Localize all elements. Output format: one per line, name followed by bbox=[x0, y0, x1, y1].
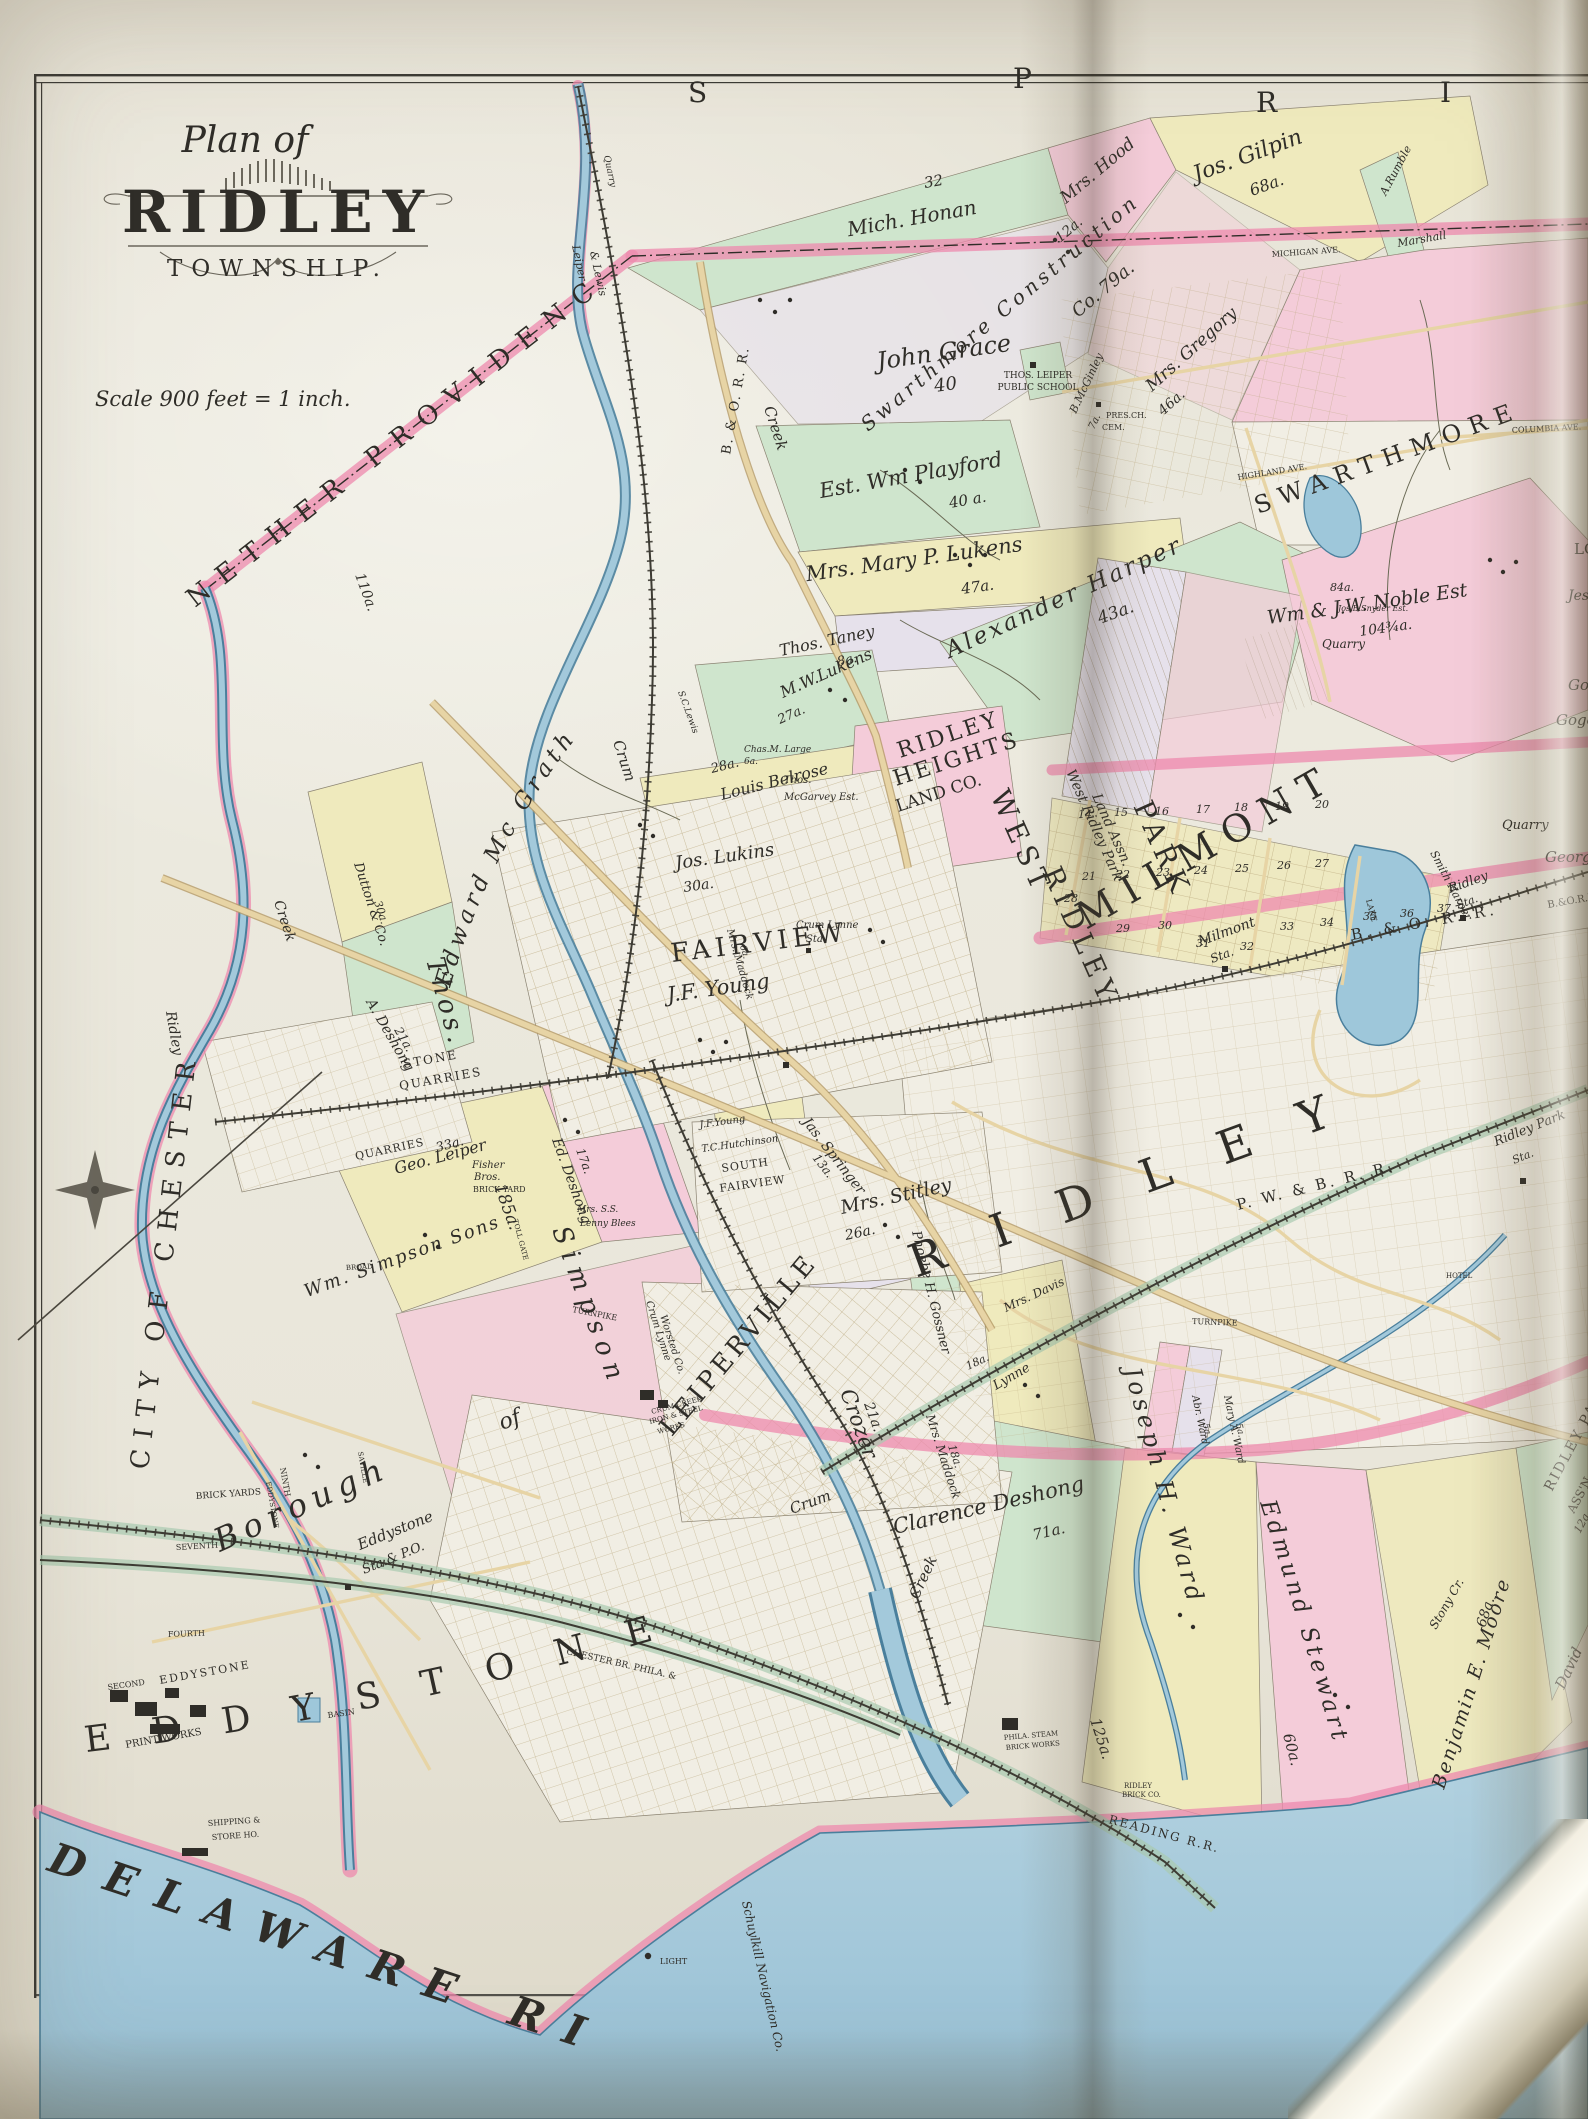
label-honan-acreage: 32 bbox=[923, 171, 945, 192]
svg-text:29: 29 bbox=[1115, 922, 1130, 935]
title-name: RIDLEY bbox=[122, 178, 434, 246]
label-mcgarvey-2: McGarvey Est. bbox=[783, 792, 859, 803]
scale-note: Scale 900 feet = 1 inch. bbox=[95, 387, 351, 411]
label-light: LIGHT bbox=[660, 1957, 688, 1966]
edge-letter-p: P bbox=[1013, 62, 1032, 95]
label-school-1: THOS. LEIPER bbox=[1004, 371, 1073, 381]
crum-lake bbox=[1336, 845, 1430, 1045]
svg-text:14: 14 bbox=[1078, 808, 1092, 821]
svg-text:27: 27 bbox=[1314, 857, 1329, 870]
label-pres-church: PRES.CH. bbox=[1106, 411, 1147, 420]
label-nether-providence: NETHER PROVIDENCE bbox=[0, 0, 611, 614]
edge-letter-r: R bbox=[1256, 86, 1278, 119]
svg-text:36: 36 bbox=[1400, 907, 1414, 920]
label-t-fragment: T bbox=[1532, 1885, 1550, 1915]
label-sc-lewis: S.C.Lewis bbox=[675, 690, 700, 736]
svg-text:15: 15 bbox=[1114, 806, 1128, 819]
svg-text:30: 30 bbox=[1158, 919, 1172, 932]
svg-text:19: 19 bbox=[1275, 800, 1289, 813]
label-print-works-1: EDDYSTONE bbox=[158, 1658, 251, 1687]
svg-text:21: 21 bbox=[1081, 870, 1096, 883]
atlas-page: Plan of RIDLEY TOWNSHIP. Scale 900 feet … bbox=[0, 0, 1588, 2119]
label-brick-yards: BRICK YARDS bbox=[196, 1487, 262, 1502]
title-township: TOWNSHIP. bbox=[167, 256, 389, 282]
label-shipping-1: SHIPPING & bbox=[208, 1815, 261, 1828]
label-bo-rr-east: B.&O.R.R. bbox=[1547, 891, 1588, 911]
label-crumlynne-sta-2: Sta. bbox=[806, 934, 826, 945]
svg-text:16: 16 bbox=[1155, 805, 1169, 818]
svg-text:37: 37 bbox=[1437, 902, 1451, 915]
svg-text:35: 35 bbox=[1363, 910, 1377, 923]
label-fourth-st: FOURTH bbox=[168, 1629, 205, 1639]
svg-text:22: 22 bbox=[1115, 868, 1130, 881]
label-ridley-creek-1: Ridley bbox=[162, 1009, 186, 1058]
label-school-2: PUBLIC SCHOOL bbox=[997, 383, 1078, 393]
label-broad-st: BROAD bbox=[346, 1263, 374, 1272]
svg-text:34: 34 bbox=[1320, 916, 1334, 929]
svg-text:26: 26 bbox=[1276, 859, 1291, 872]
label-go: Go bbox=[1568, 676, 1588, 694]
label-crum-1: Crum bbox=[609, 738, 639, 784]
label-fisher-2: Bros. bbox=[473, 1172, 500, 1183]
map-ridley-township: Plan of RIDLEY TOWNSHIP. Scale 900 feet … bbox=[0, 0, 1588, 2119]
svg-text:25: 25 bbox=[1234, 862, 1249, 875]
label-shipping-2: STORE HO. bbox=[212, 1830, 260, 1842]
label-large: Chas.M. Large bbox=[744, 745, 811, 755]
label-hotel: HOTEL bbox=[1446, 1272, 1473, 1280]
title-plan-of: Plan of bbox=[181, 120, 315, 161]
label-ridley-brick-1: RIDLEY bbox=[1124, 1782, 1152, 1790]
label-ridley-brick-2: BRICK CO. bbox=[1122, 1791, 1161, 1799]
svg-text:32: 32 bbox=[1240, 940, 1254, 953]
label-michigan-ave: MICHIGAN AVE. bbox=[1272, 245, 1341, 259]
svg-text:33: 33 bbox=[1280, 920, 1294, 933]
svg-text:17: 17 bbox=[1196, 803, 1210, 816]
label-large-acreage: 6a. bbox=[744, 757, 758, 767]
label-crumlynne-sta-1: Crum Lynne bbox=[796, 920, 859, 931]
label-quarry-east: Quarry bbox=[1502, 818, 1549, 833]
label-fisher-3: BRICK YARD bbox=[473, 1185, 526, 1194]
edge-letter-s: S bbox=[688, 76, 707, 109]
label-lo: LO bbox=[1574, 540, 1588, 558]
label-goge: Goge bbox=[1556, 711, 1588, 729]
label-quarry-top: Quarry bbox=[601, 155, 618, 189]
label-second-st: SECOND bbox=[107, 1678, 145, 1692]
label-seventh-st: SEVENTH bbox=[176, 1541, 219, 1552]
svg-text:24: 24 bbox=[1193, 864, 1208, 877]
label-cemetery: CEM. bbox=[1102, 423, 1125, 432]
svg-text:23: 23 bbox=[1155, 866, 1170, 879]
svg-text:31: 31 bbox=[1196, 937, 1210, 950]
label-lenny-1: Mrs. S.S. bbox=[576, 1205, 618, 1215]
label-mcgarvey-1: Thos. bbox=[784, 775, 811, 786]
svg-text:28: 28 bbox=[1063, 892, 1078, 905]
label-lenny-2: Lenny Blees bbox=[579, 1219, 636, 1229]
label-snyder: Jos.B.Snyder Est. bbox=[1336, 604, 1408, 613]
label-quarry-noble: Quarry bbox=[1322, 637, 1365, 651]
label-phila-brick-2: BRICK WORKS bbox=[1005, 1739, 1060, 1752]
label-snyder-acreage: 84a. bbox=[1330, 581, 1354, 594]
label-jes: Jes bbox=[1565, 588, 1588, 604]
label-leiper-lewis-1: Leiper bbox=[569, 243, 590, 283]
edge-letter-i: I bbox=[1440, 76, 1451, 109]
label-turnpike-2: TURNPIKE bbox=[1192, 1317, 1238, 1328]
label-mcgrath-acreage: 110a. bbox=[351, 571, 380, 614]
label-fisher-1: Fisher bbox=[471, 1160, 506, 1171]
svg-text:18: 18 bbox=[1234, 801, 1248, 814]
label-george: George bbox=[1545, 848, 1588, 866]
svg-text:20: 20 bbox=[1314, 798, 1329, 811]
